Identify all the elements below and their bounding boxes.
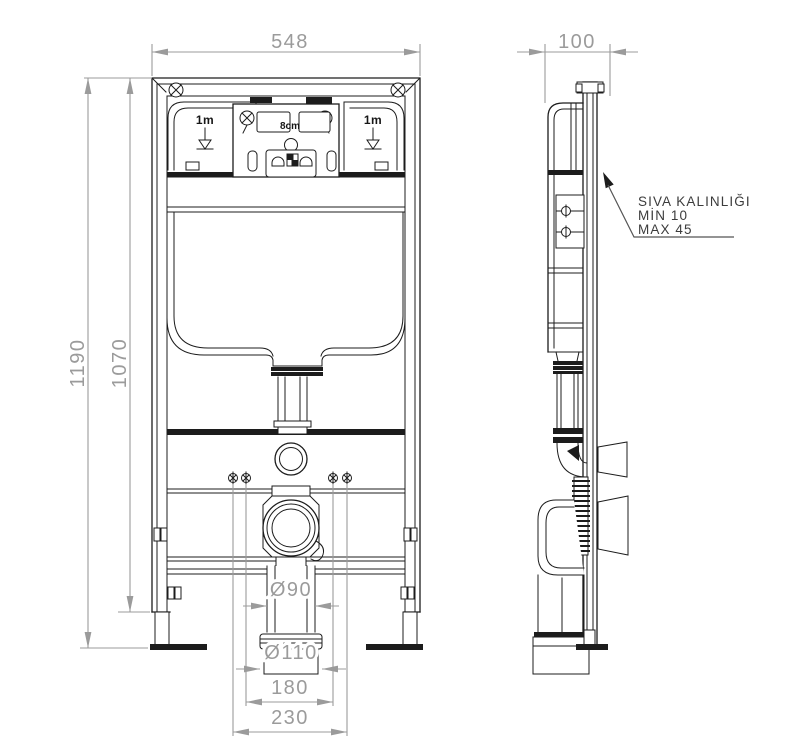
- down-arrow-icon: [367, 140, 379, 149]
- leg-right: [403, 612, 417, 645]
- dim-label: Ø90: [270, 579, 312, 601]
- bolt-icon: [229, 472, 238, 484]
- side-cistern: [548, 103, 584, 443]
- dim-label: 548: [271, 31, 309, 53]
- drain-socket: [263, 500, 319, 556]
- level-mark-left: 1m: [196, 113, 214, 149]
- cover-notch-right: [375, 162, 388, 170]
- leg-clip-icon: [168, 587, 174, 599]
- flush-pipe: [278, 377, 307, 421]
- cistern-tank: [167, 172, 405, 421]
- side-elbows: [533, 443, 590, 674]
- side-view: [533, 82, 628, 674]
- note-line-3: MAX 45: [638, 222, 693, 237]
- side-coupling: [533, 637, 589, 674]
- stud-lower: [598, 496, 628, 555]
- corner-chamfer-left: [153, 79, 166, 92]
- down-arrow-icon: [199, 140, 211, 149]
- foot-right: [366, 644, 423, 650]
- level-mark-label: 1m: [364, 113, 382, 127]
- level-mark-right: 1m: [364, 113, 382, 149]
- frame-screws: [169, 83, 405, 97]
- note-line-2: MİN 10: [638, 208, 688, 223]
- leg-left: [155, 612, 169, 645]
- clamp-top-tab: [272, 486, 310, 496]
- foot-left: [150, 644, 207, 650]
- dim-label: Ø110: [264, 642, 317, 664]
- dim-frame-height: 1070: [109, 78, 150, 612]
- dim-frame-width: 548: [152, 31, 420, 76]
- dim-label: 1070: [109, 338, 131, 389]
- clip-icon: [404, 528, 410, 541]
- corner-chamfer-right: [406, 79, 419, 92]
- leg-clip-icon: [401, 587, 407, 599]
- side-flush-pipe: [557, 374, 578, 428]
- cover-notch-left: [186, 162, 199, 170]
- drawing-canvas: 1m 1m: [0, 0, 800, 752]
- outlet-gasket: [271, 372, 323, 376]
- stud-upper: [598, 442, 627, 477]
- tank-outline: [167, 177, 405, 366]
- mounting-studs: [598, 442, 628, 555]
- dim-label: 1190: [67, 338, 89, 387]
- plaster-note: SIVA KALINLIĞI MİN 10 MAX 45: [603, 172, 751, 237]
- side-bracket: [556, 195, 584, 248]
- dim-label: 100: [558, 31, 596, 53]
- outlet-gasket: [271, 367, 323, 371]
- flush-button-right: [299, 112, 330, 132]
- bolt-icon: [343, 472, 352, 484]
- access-box: 8cm: [233, 97, 339, 177]
- note-line-1: SIVA KALINLIĞI: [638, 194, 751, 209]
- bolt-icon: [242, 472, 251, 484]
- dim-label: 180: [271, 677, 309, 699]
- bolt-icon: [329, 472, 338, 484]
- dim-label: 230: [271, 707, 309, 729]
- level-mark-label: 1m: [196, 113, 214, 127]
- flush-plate-depth-label: 8cm: [280, 121, 300, 132]
- flush-pipe-flare: [274, 421, 311, 427]
- side-foot: [576, 644, 608, 650]
- clip-icon: [154, 528, 160, 541]
- flush-outlet: [275, 443, 307, 475]
- installation-drawing: 1m 1m: [0, 0, 800, 752]
